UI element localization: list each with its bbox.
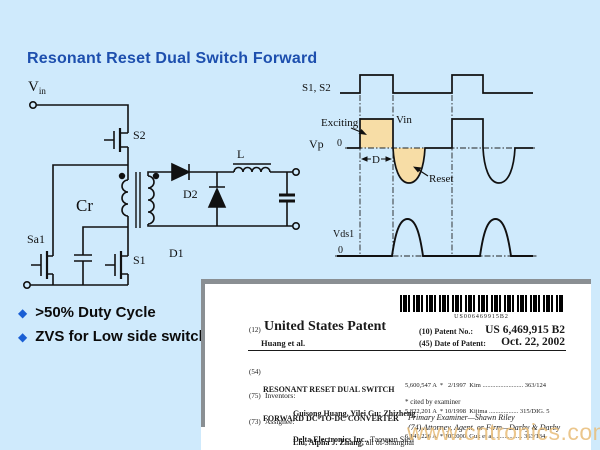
watermark-text: www.cntronics.com [407, 419, 600, 446]
aux-branch-wire [53, 165, 128, 285]
label-vp-zero: 0 [337, 138, 342, 149]
core-lines [136, 172, 140, 228]
s1s2-gate-waveform [340, 75, 533, 93]
label-exciting: Exciting [321, 117, 359, 129]
label-vds1: Vds1 [333, 229, 354, 240]
patent-header-title: United States Patent [264, 319, 386, 335]
output-inductor [233, 164, 271, 172]
field73-number: (73) [249, 418, 261, 426]
patent-barcode [400, 295, 563, 312]
label-vds1-zero: 0 [338, 245, 343, 256]
circuit-schematic: Vin S2 Sa1 S1 Cr D1 D2 L [24, 79, 299, 288]
output-positive-terminal [293, 169, 299, 175]
patent-left-border [201, 279, 205, 427]
patent-top-border [201, 279, 591, 284]
label-reset: Reset [429, 173, 453, 185]
patent-number-value: US 6,469,915 B2 [485, 324, 565, 336]
patent-header-rule [248, 350, 566, 351]
assignee-block: Delta Electronics Inc., Taoyuan Sien (TW… [293, 416, 414, 450]
bullet-item-zvs: ◆ ZVS for Low side switch [18, 328, 208, 345]
patent-date-label: (45) Date of Patent: [419, 339, 486, 348]
secondary-polarity-dot [154, 174, 159, 179]
rectifier-diode [172, 164, 189, 180]
label-duty-d: D [372, 154, 380, 166]
citation-row: 5,600,547 A * 2/1997 Kim ...............… [405, 382, 549, 391]
label-s1: S1 [133, 253, 146, 267]
mosfet-s1 [105, 251, 128, 279]
cited-by-examiner-note: * cited by examiner [405, 398, 460, 406]
vin-negative-terminal [24, 282, 30, 288]
output-negative-terminal [293, 223, 299, 229]
vin-positive-terminal [30, 102, 36, 108]
mosfet-s2 [104, 128, 128, 152]
output-capacitor [279, 172, 295, 226]
primary-winding [122, 180, 128, 216]
label-cr: Cr [76, 196, 93, 215]
field54-number: (54) [249, 368, 261, 376]
field75-label: Inventors: [265, 391, 295, 400]
field75-number: (75) [249, 392, 261, 400]
vds1-waveform [337, 219, 533, 256]
secondary-bottom-wire [148, 224, 293, 226]
bullet-label: >50% Duty Cycle [35, 304, 155, 321]
slide: Resonant Reset Dual Switch Forward [0, 0, 600, 450]
patent-inventor-line: Huang et al. [261, 338, 305, 348]
diamond-bullet-icon: ◆ [18, 307, 27, 319]
mosfet-sa1 [31, 251, 53, 279]
secondary-top-wire [148, 172, 293, 176]
diamond-bullet-icon: ◆ [18, 331, 27, 343]
assignee-bold: Delta Electronics Inc., [293, 435, 368, 444]
primary-polarity-dot [120, 174, 125, 179]
field73-label: Assignee: [265, 417, 295, 426]
label-sa1: Sa1 [27, 232, 45, 246]
secondary-winding [148, 176, 154, 224]
freewheel-diode [209, 172, 225, 226]
label-l: L [237, 147, 244, 161]
waveform-plot: S1, S2 Exciting Vin Vp 0 D Reset Vds1 0 [302, 75, 537, 256]
label-d2: D2 [183, 187, 198, 201]
bullet-label: ZVS for Low side switch [35, 328, 208, 345]
label-vp: Vp [309, 137, 324, 151]
patent-kind-code: (12) [249, 326, 261, 334]
label-vin: Vin [28, 79, 46, 96]
patent-date-value: Oct. 22, 2002 [501, 336, 565, 348]
bullet-item-duty-cycle: ◆ >50% Duty Cycle [18, 304, 156, 321]
transformer [120, 172, 159, 228]
patent-barcode-number: US006469915B2 [400, 314, 563, 320]
label-s1s2: S1, S2 [302, 82, 331, 94]
label-wave-vin: Vin [396, 114, 412, 126]
label-d1: D1 [169, 246, 184, 260]
reset-shaded-region [393, 148, 425, 183]
patent-number-label: (10) Patent No.: [419, 327, 473, 336]
label-s2: S2 [133, 128, 146, 142]
